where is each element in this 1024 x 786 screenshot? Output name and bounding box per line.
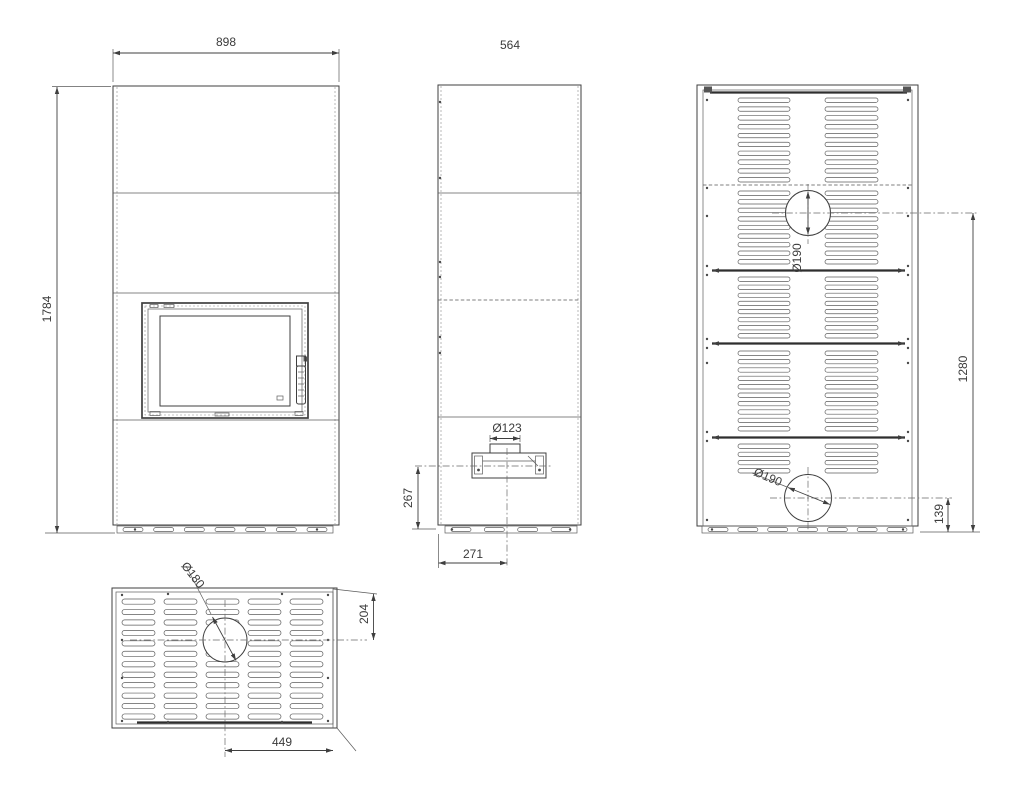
drawing-canvas xyxy=(0,0,1024,786)
rear-vent-slots xyxy=(738,98,878,473)
front-view xyxy=(45,49,339,533)
dim-label-flue-diameter: Ø123 xyxy=(492,422,521,434)
rear-panel-screws xyxy=(706,99,909,521)
dim-label-top-outlet-from-side: 449 xyxy=(272,736,292,748)
back-view xyxy=(697,85,980,533)
firebox-door xyxy=(142,303,309,418)
door-glass xyxy=(160,316,290,406)
top-view xyxy=(112,566,377,757)
dim-label-flue-height: 267 xyxy=(402,488,414,508)
dim-label-side-depth: 564 xyxy=(500,39,520,51)
technical-drawing-page: 898 1784 564 Ø123 267 271 Ø190 1280 Ø190… xyxy=(0,0,1024,786)
dim-label-upper-outlet-height: 1280 xyxy=(957,356,969,383)
dim-label-front-height: 1784 xyxy=(41,296,53,323)
flue-connection-stub xyxy=(472,444,546,478)
door-handle xyxy=(297,356,309,404)
dim-label-front-width: 898 xyxy=(216,36,236,48)
dim-label-lower-outlet-height: 139 xyxy=(933,504,945,524)
side-plinth xyxy=(445,526,577,533)
front-plinth xyxy=(117,526,333,533)
dim-label-upper-outlet-dia: Ø190 xyxy=(791,243,803,272)
dim-label-flue-offset: 271 xyxy=(463,548,483,560)
brand-logo-mark xyxy=(277,396,283,400)
side-view xyxy=(412,85,581,568)
dim-label-top-outlet-from-rear: 204 xyxy=(358,604,370,624)
back-plinth xyxy=(702,526,913,533)
